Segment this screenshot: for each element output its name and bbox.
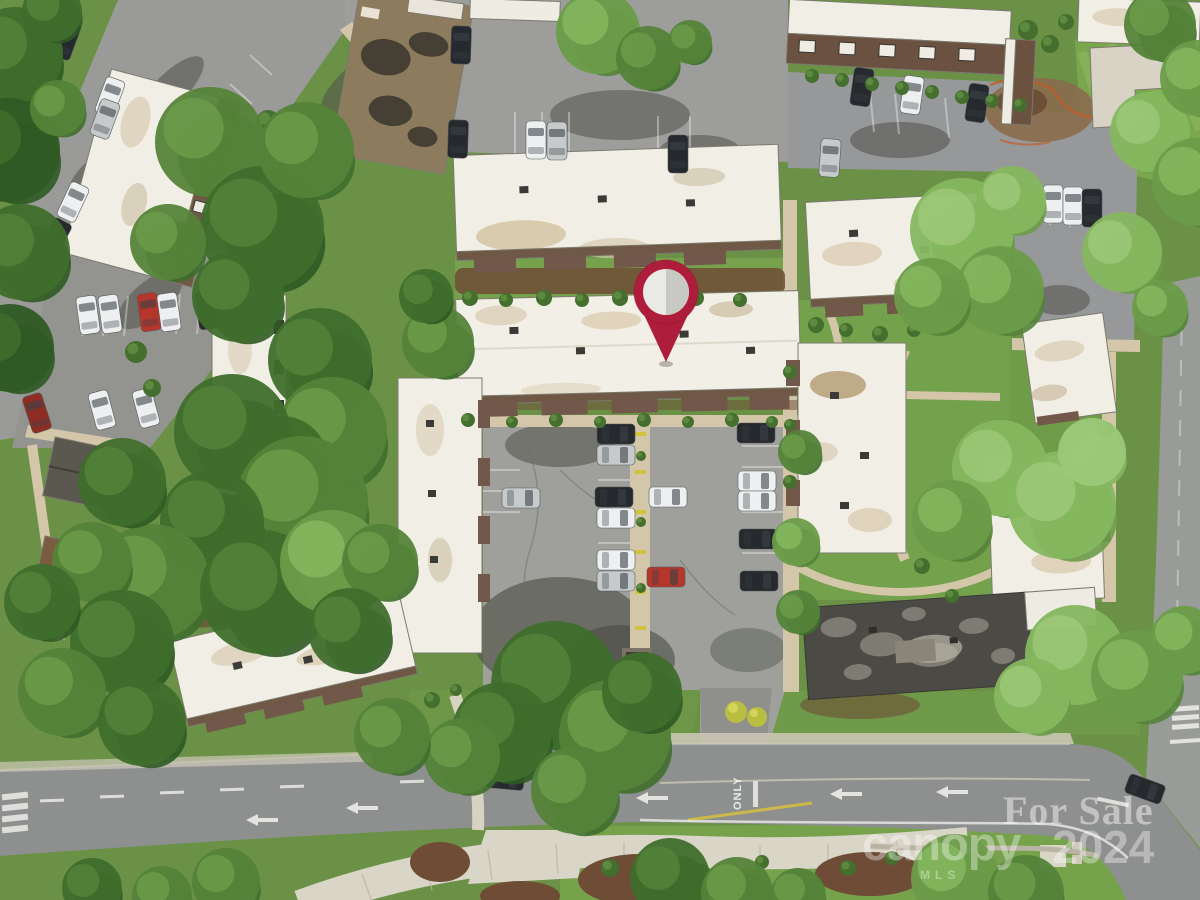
- year-watermark: 2024: [1052, 821, 1155, 873]
- aerial-photo-canvas: ONLY: [0, 0, 1200, 900]
- building-east-B: [1021, 313, 1117, 426]
- building-west-L: [398, 378, 490, 653]
- brand-watermark: canopy: [862, 817, 1021, 870]
- brand-sub-watermark: MLS: [920, 868, 960, 882]
- road-text-only: ONLY: [732, 776, 744, 810]
- aerial-photo: ONLY: [0, 0, 1200, 900]
- building-subject-property: [456, 291, 802, 418]
